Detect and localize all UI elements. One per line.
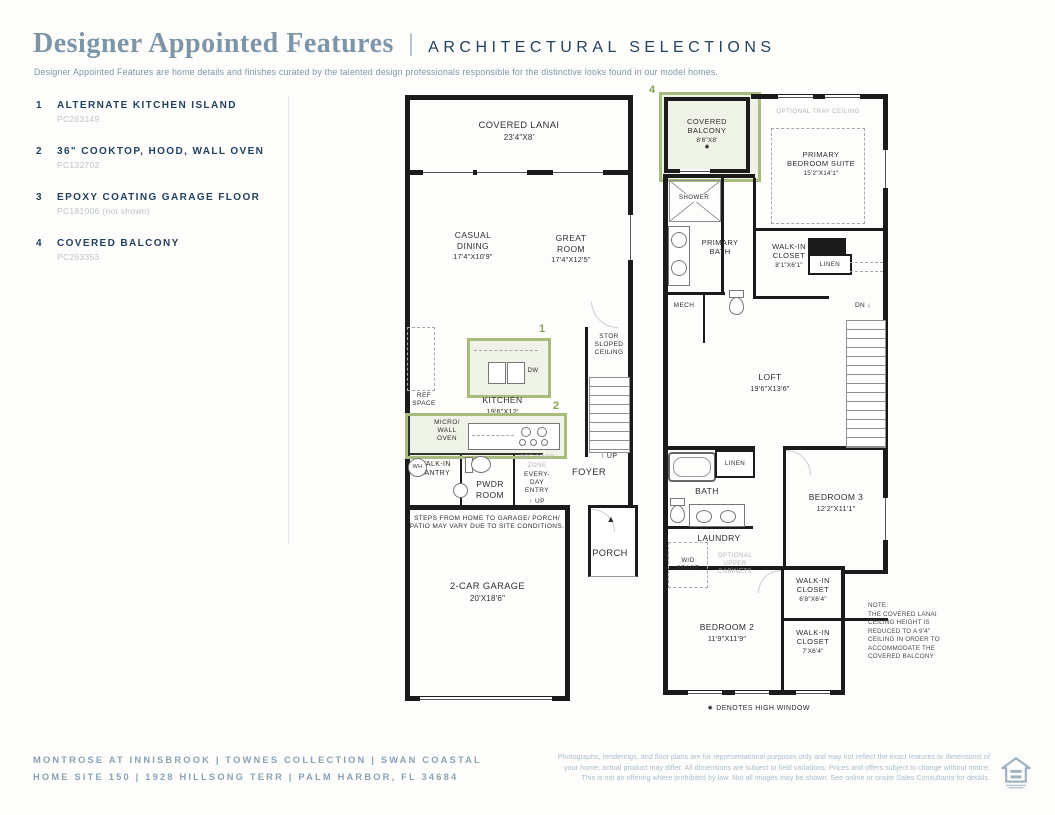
feature-label: 36" COOKTOP, HOOD, WALL OVEN [57, 146, 297, 157]
feature-number: 2 [36, 146, 42, 157]
label-storage-sloped-ceiling: STOR SLOPED CEILING [589, 333, 629, 357]
kitchen-counter [468, 423, 560, 450]
window [778, 95, 813, 100]
wall [753, 296, 829, 299]
feature-code: PC263353 [57, 252, 100, 262]
high-window-footnote: * DENOTES HIGH WINDOW [708, 705, 868, 716]
entry-marker: ▲ [603, 514, 619, 525]
page-title: Designer Appointed Features [33, 28, 394, 60]
counter-dash-line [472, 435, 514, 436]
sink-fixture [671, 232, 687, 248]
feature-marker-2: 2 [553, 400, 559, 412]
door-arc [786, 450, 811, 475]
room-label-great-room: GREAT ROOM 17'4"X12'5" [527, 233, 615, 264]
room-label-bedroom-3: BEDROOM 3 12'2"X11'1" [793, 492, 879, 513]
wall [628, 95, 633, 175]
entry-triangle-icon: ▲ [606, 514, 615, 525]
high-window-star: * [705, 144, 709, 155]
label-optional-upper-cabinets: OPTIONAL UPPER CABINETS [709, 552, 761, 575]
wall [585, 327, 588, 457]
room-label-walk-in-closet-3: WALK-IN CLOSET 7'X6'4" [785, 628, 841, 655]
water-heater: WH [408, 458, 427, 477]
window [688, 691, 722, 696]
room-label-primary-bath: PRIMARY BATH [689, 238, 751, 257]
page-description: Designer Appointed Features are home det… [34, 67, 718, 77]
wall [755, 228, 883, 231]
sliding-door [553, 170, 603, 175]
feature-code: PC181006 (not shown) [57, 206, 150, 216]
burner [530, 439, 537, 446]
burner [541, 439, 548, 446]
sink-fixture [671, 260, 687, 276]
counter-dash-line [474, 350, 538, 351]
second-floor-plan: 4 COVERED BALCONY 8'6"X8' * OPTIONAL TRA… [663, 90, 893, 730]
room-label-bedroom-2: BEDROOM 2 11'9"X11'9" [677, 622, 777, 643]
window [477, 170, 527, 175]
wall [703, 295, 705, 343]
feature-label: COVERED BALCONY [57, 238, 297, 249]
dishwasher-label: DW [524, 367, 542, 375]
bathtub [668, 452, 716, 482]
footer-disclaimer: Photographs, renderings, and floor plans… [530, 753, 990, 785]
up-arrow-icon: ↑ [529, 498, 533, 505]
room-label-casual-dining: CASUAL DINING 17'4"X10'9" [433, 230, 513, 261]
door-arc [591, 301, 618, 328]
window [423, 170, 473, 175]
equal-housing-icon [1001, 757, 1031, 789]
room-label-pwdr-room: PWDR ROOM [467, 479, 513, 500]
porch: ▲ PORCH [588, 505, 638, 577]
sink-fixture [720, 510, 736, 523]
window [883, 498, 888, 540]
wall [664, 97, 668, 173]
linen-closet-1: LINEN [808, 254, 852, 275]
feature-item-3: 3 EPOXY COATING GARAGE FLOOR PC181006 (n… [36, 192, 286, 226]
feature-item-1: 1 ALTERNATE KITCHEN ISLAND PC263149 [36, 100, 286, 134]
label-wd-space: W/D SPACE [669, 557, 707, 573]
sink-fixture [453, 483, 468, 498]
wall [664, 97, 750, 101]
steps-disclaimer: STEPS FROM HOME TO GARAGE/ PORCH/ PATIO … [409, 515, 565, 531]
island-cabinet [488, 362, 506, 384]
title-divider: | [408, 30, 414, 58]
linen-closet-2: LINEN [715, 450, 755, 478]
wall [405, 95, 633, 100]
wall [746, 97, 750, 173]
feature-item-2: 2 36" COOKTOP, HOOD, WALL OVEN PC132702 [36, 146, 286, 180]
covered-balcony-highlight: COVERED BALCONY 8'6"X8' * [659, 92, 761, 182]
tall-cabinet-dashed [407, 327, 435, 391]
kitchen-island-highlight: DW [467, 338, 551, 398]
cooktop-wall-oven-highlight: MICRO/ WALL OVEN [405, 413, 567, 459]
room-label-foyer: FOYER [557, 467, 621, 479]
wall [405, 95, 410, 175]
footer-address-line: HOME SITE 150 | 1928 HILLSONG TERR | PAL… [33, 772, 458, 782]
window [825, 95, 860, 100]
feature-number: 3 [36, 192, 42, 203]
label-micro-wall-oven: MICRO/ WALL OVEN [426, 419, 468, 443]
first-floor-plan: COVERED LANAI 23'4"X8' CASUAL DINING 17'… [405, 95, 633, 701]
island-cabinet [507, 362, 525, 384]
up-arrow-icon: ↑ [601, 453, 605, 460]
label-up-entry: ↑ UP [517, 498, 557, 506]
wall [663, 292, 725, 295]
stairs-down [846, 320, 886, 448]
room-label-porch: PORCH [591, 548, 629, 560]
sidebar-divider [288, 96, 289, 544]
wall [841, 570, 845, 694]
feature-code: PC132702 [57, 160, 100, 170]
room-label-garage: 2-CAR GARAGE 20'X18'6" [430, 581, 545, 603]
wall [721, 178, 724, 292]
feature-marker-4: 4 [649, 84, 655, 96]
feature-label: EPOXY COATING GARAGE FLOOR [57, 192, 297, 203]
room-label-bath: BATH [679, 486, 735, 497]
label-wh: WH [409, 464, 426, 471]
page: { "header": { "title": "Designer Appoint… [0, 0, 1055, 815]
wd-space-dashed: W/D SPACE [668, 542, 708, 588]
room-label-loft: LOFT 19'6"X13'6" [725, 372, 815, 393]
room-label-covered-balcony: COVERED BALCONY 8'6"X8' * [670, 117, 744, 155]
label-optional-tray-ceiling: OPTIONAL TRAY CEILING [763, 108, 873, 116]
feature-number: 4 [36, 238, 42, 249]
label-ref-space: REF SPACE [407, 392, 441, 408]
sink-fixture [696, 510, 712, 523]
stairs-up [589, 377, 630, 453]
window [883, 150, 888, 188]
room-label-primary-bedroom: PRIMARY BEDROOM SUITE 15'2"X14'1" [771, 150, 871, 177]
label-dn: DN ↓ [847, 302, 879, 310]
window [735, 691, 769, 696]
label-linen-1: LINEN [820, 261, 840, 269]
toilet-fixture [471, 456, 491, 473]
wall [565, 505, 570, 701]
footer-community-line: MONTROSE AT INNISBROOK | TOWNES COLLECTI… [33, 755, 482, 765]
equal-housing-logo [1001, 757, 1031, 794]
label-linen-2: LINEN [725, 460, 745, 468]
page-subheading: ARCHITECTURAL SELECTIONS [428, 39, 775, 57]
label-shower: SHOWER [671, 194, 717, 202]
wall [663, 174, 755, 178]
feature-number: 1 [36, 100, 42, 111]
linen-shelf-dashes [850, 262, 883, 272]
label-everyday-entry: EVERY- DAY ENTRY [517, 471, 557, 495]
door-arc [758, 570, 781, 593]
high-window-star: * [708, 705, 712, 716]
burner [521, 427, 531, 437]
feature-item-4: 4 COVERED BALCONY PC263353 [36, 238, 286, 272]
wall [405, 505, 410, 701]
toilet-fixture [670, 505, 685, 523]
toilet-fixture [729, 297, 744, 315]
down-arrow-icon: ↓ [867, 302, 871, 309]
room-label-mech: MECH [665, 302, 703, 310]
window [628, 215, 633, 260]
feature-label: ALTERNATE KITCHEN ISLAND [57, 100, 297, 111]
wall [751, 94, 888, 99]
wall [781, 570, 784, 694]
label-up-stairs: ↑ UP [593, 453, 625, 462]
window [796, 691, 830, 696]
bath-vanity [689, 504, 745, 527]
feature-marker-1: 1 [539, 323, 545, 335]
burner [519, 439, 526, 446]
room-label-covered-lanai: COVERED LANAI 23'4"X8' [445, 120, 593, 142]
lanai-ceiling-note: NOTE: THE COVERED LANAI CEILING HEIGHT I… [868, 602, 960, 662]
room-label-walk-in-closet-2: WALK-IN CLOSET 6'8"X6'4" [785, 576, 841, 603]
feature-code: PC263149 [57, 114, 100, 124]
label-opt-drop-zone: OPT DROP ZONE [515, 454, 559, 470]
page-header: Designer Appointed Features | ARCHITECTU… [33, 28, 776, 60]
garage-door [420, 697, 552, 702]
wall [841, 570, 888, 574]
wall [753, 178, 756, 299]
burner [537, 427, 547, 437]
bathtub-basin [673, 457, 711, 477]
